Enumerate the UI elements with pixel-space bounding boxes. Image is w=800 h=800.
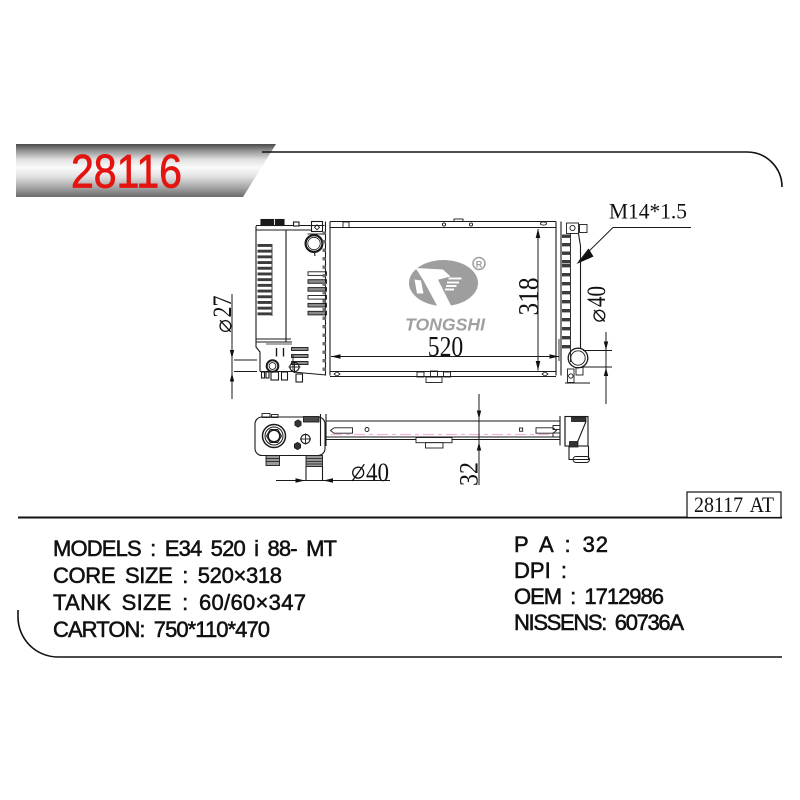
svg-text:P A : 32: P A : 32 <box>514 532 608 557</box>
svg-text:40: 40 <box>366 458 389 487</box>
svg-text:TANK SIZE : 60/60×347: TANK SIZE : 60/60×347 <box>53 590 306 615</box>
svg-text:OEM : 1712986: OEM : 1712986 <box>514 584 664 609</box>
svg-text:CORE SIZE : 520×318: CORE SIZE : 520×318 <box>53 563 282 588</box>
svg-text:MODELS : E34 520 i 88- MT: MODELS : E34 520 i 88- MT <box>53 536 337 561</box>
svg-text:40: 40 <box>582 286 611 307</box>
svg-text:R: R <box>476 260 483 270</box>
svg-text:32: 32 <box>455 462 484 486</box>
svg-text:DPI :: DPI : <box>514 558 567 583</box>
svg-text:318: 318 <box>514 278 545 316</box>
svg-text:28116: 28116 <box>71 145 182 198</box>
svg-text:27: 27 <box>208 296 237 318</box>
svg-text:28117 AT: 28117 AT <box>694 492 775 517</box>
svg-text:520: 520 <box>428 332 464 363</box>
svg-text:CARTON: 750*110*470: CARTON: 750*110*470 <box>53 617 270 642</box>
svg-text:NISSENS: 60736A: NISSENS: 60736A <box>514 610 684 635</box>
svg-text:M14*1.5: M14*1.5 <box>609 199 687 224</box>
